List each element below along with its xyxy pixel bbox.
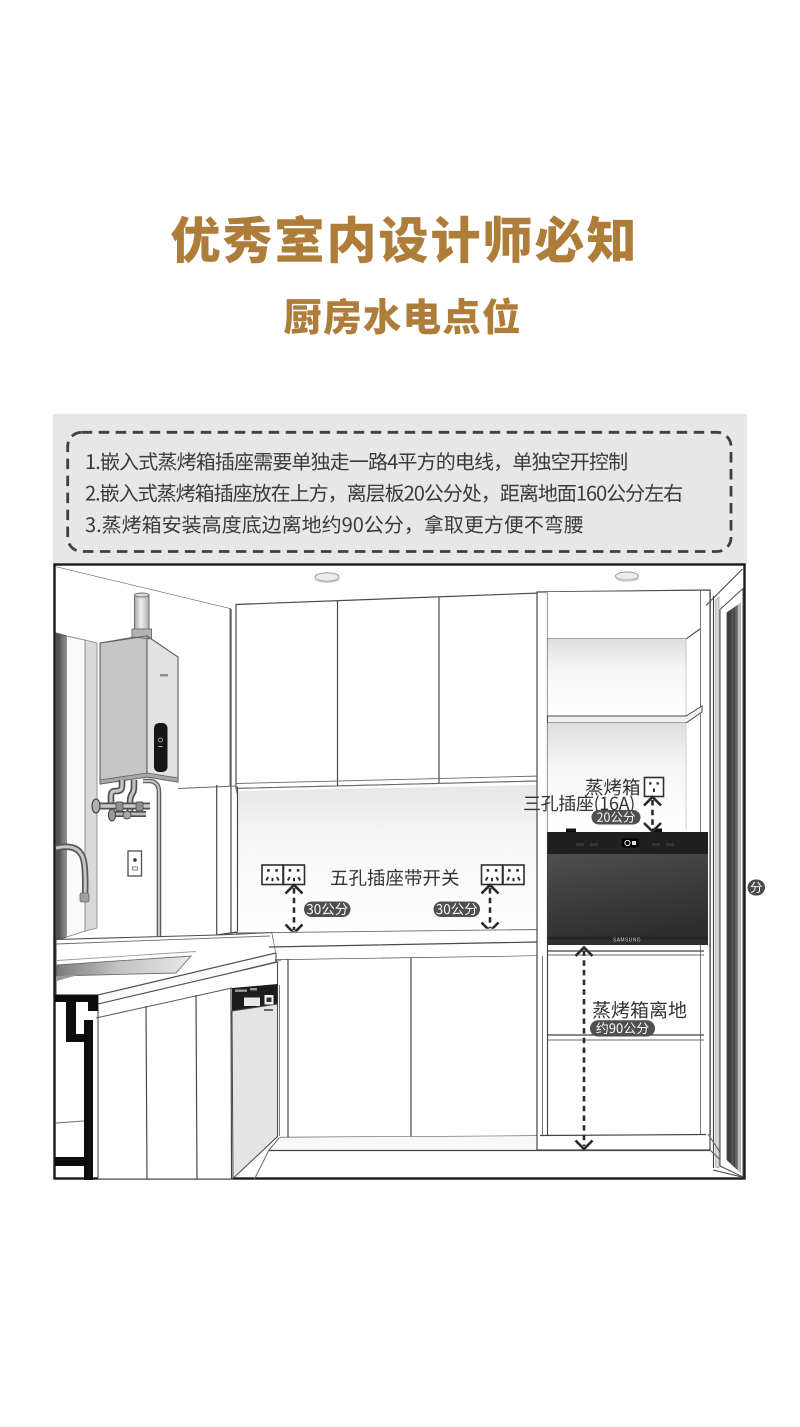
svg-text:SAMSUNG: SAMSUNG [613,938,641,944]
